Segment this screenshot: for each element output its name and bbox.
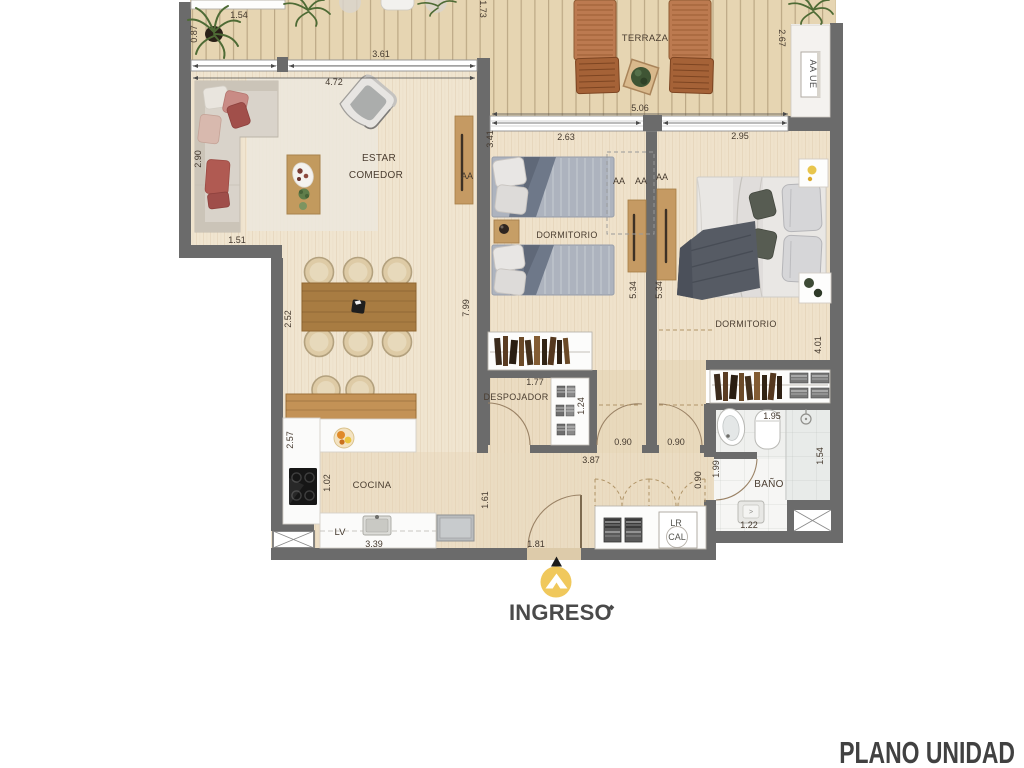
svg-text:5.06: 5.06 <box>631 103 649 113</box>
svg-text:1.81: 1.81 <box>527 539 545 549</box>
svg-text:DORMITORIO: DORMITORIO <box>536 230 597 240</box>
svg-text:1.24: 1.24 <box>576 397 586 415</box>
svg-text:3.41: 3.41 <box>485 130 495 148</box>
svg-text:0.90: 0.90 <box>693 471 703 489</box>
svg-text:PLANO UNIDAD: PLANO UNIDAD <box>839 735 1015 768</box>
svg-text:2.52: 2.52 <box>283 310 293 328</box>
svg-text:4.01: 4.01 <box>813 336 823 354</box>
svg-text:2.90: 2.90 <box>193 150 203 168</box>
svg-text:5.34: 5.34 <box>654 281 664 299</box>
svg-text:INGRESO: INGRESO <box>509 600 612 625</box>
svg-text:7.99: 7.99 <box>461 299 471 317</box>
svg-text:2.67: 2.67 <box>777 29 787 47</box>
svg-text:4.72: 4.72 <box>325 77 343 87</box>
svg-text:AA: AA <box>461 171 473 181</box>
svg-text:COMEDOR: COMEDOR <box>349 170 403 181</box>
svg-text:AA: AA <box>635 176 647 186</box>
svg-text:1.99: 1.99 <box>711 460 721 478</box>
svg-text:COCINA: COCINA <box>353 480 392 491</box>
svg-text:0.87: 0.87 <box>189 25 199 43</box>
svg-text:0.90: 0.90 <box>667 437 685 447</box>
svg-text:AA: AA <box>656 172 668 182</box>
svg-text:CAL: CAL <box>668 532 686 542</box>
svg-text:AA: AA <box>613 176 625 186</box>
svg-text:0.90: 0.90 <box>614 437 632 447</box>
svg-text:DESPOJADOR: DESPOJADOR <box>483 392 548 402</box>
svg-text:1.02: 1.02 <box>322 474 332 492</box>
svg-text:1.51: 1.51 <box>228 235 246 245</box>
svg-text:1.77: 1.77 <box>526 377 544 387</box>
svg-text:5.34: 5.34 <box>628 281 638 299</box>
svg-text:3.39: 3.39 <box>365 539 383 549</box>
svg-text:2.63: 2.63 <box>557 132 575 142</box>
svg-text:ESTAR: ESTAR <box>362 153 396 164</box>
svg-text:3.61: 3.61 <box>372 49 390 59</box>
svg-text:1.95: 1.95 <box>763 411 781 421</box>
svg-text:3.87: 3.87 <box>582 455 600 465</box>
svg-text:2.95: 2.95 <box>731 131 749 141</box>
svg-text:AA UE: AA UE <box>808 59 818 88</box>
svg-text:1.54: 1.54 <box>815 447 825 465</box>
svg-text:1.73: 1.73 <box>478 0 488 18</box>
svg-text:1.22: 1.22 <box>740 520 758 530</box>
svg-text:>: > <box>749 509 753 516</box>
svg-text:2.57: 2.57 <box>285 431 295 449</box>
svg-text:1.61: 1.61 <box>480 491 490 509</box>
svg-text:DORMITORIO: DORMITORIO <box>715 319 776 329</box>
svg-text:TERRAZA: TERRAZA <box>622 33 669 44</box>
svg-text:BAÑO: BAÑO <box>754 477 784 490</box>
svg-text:LV: LV <box>335 527 347 538</box>
svg-text:1.54: 1.54 <box>230 10 248 20</box>
